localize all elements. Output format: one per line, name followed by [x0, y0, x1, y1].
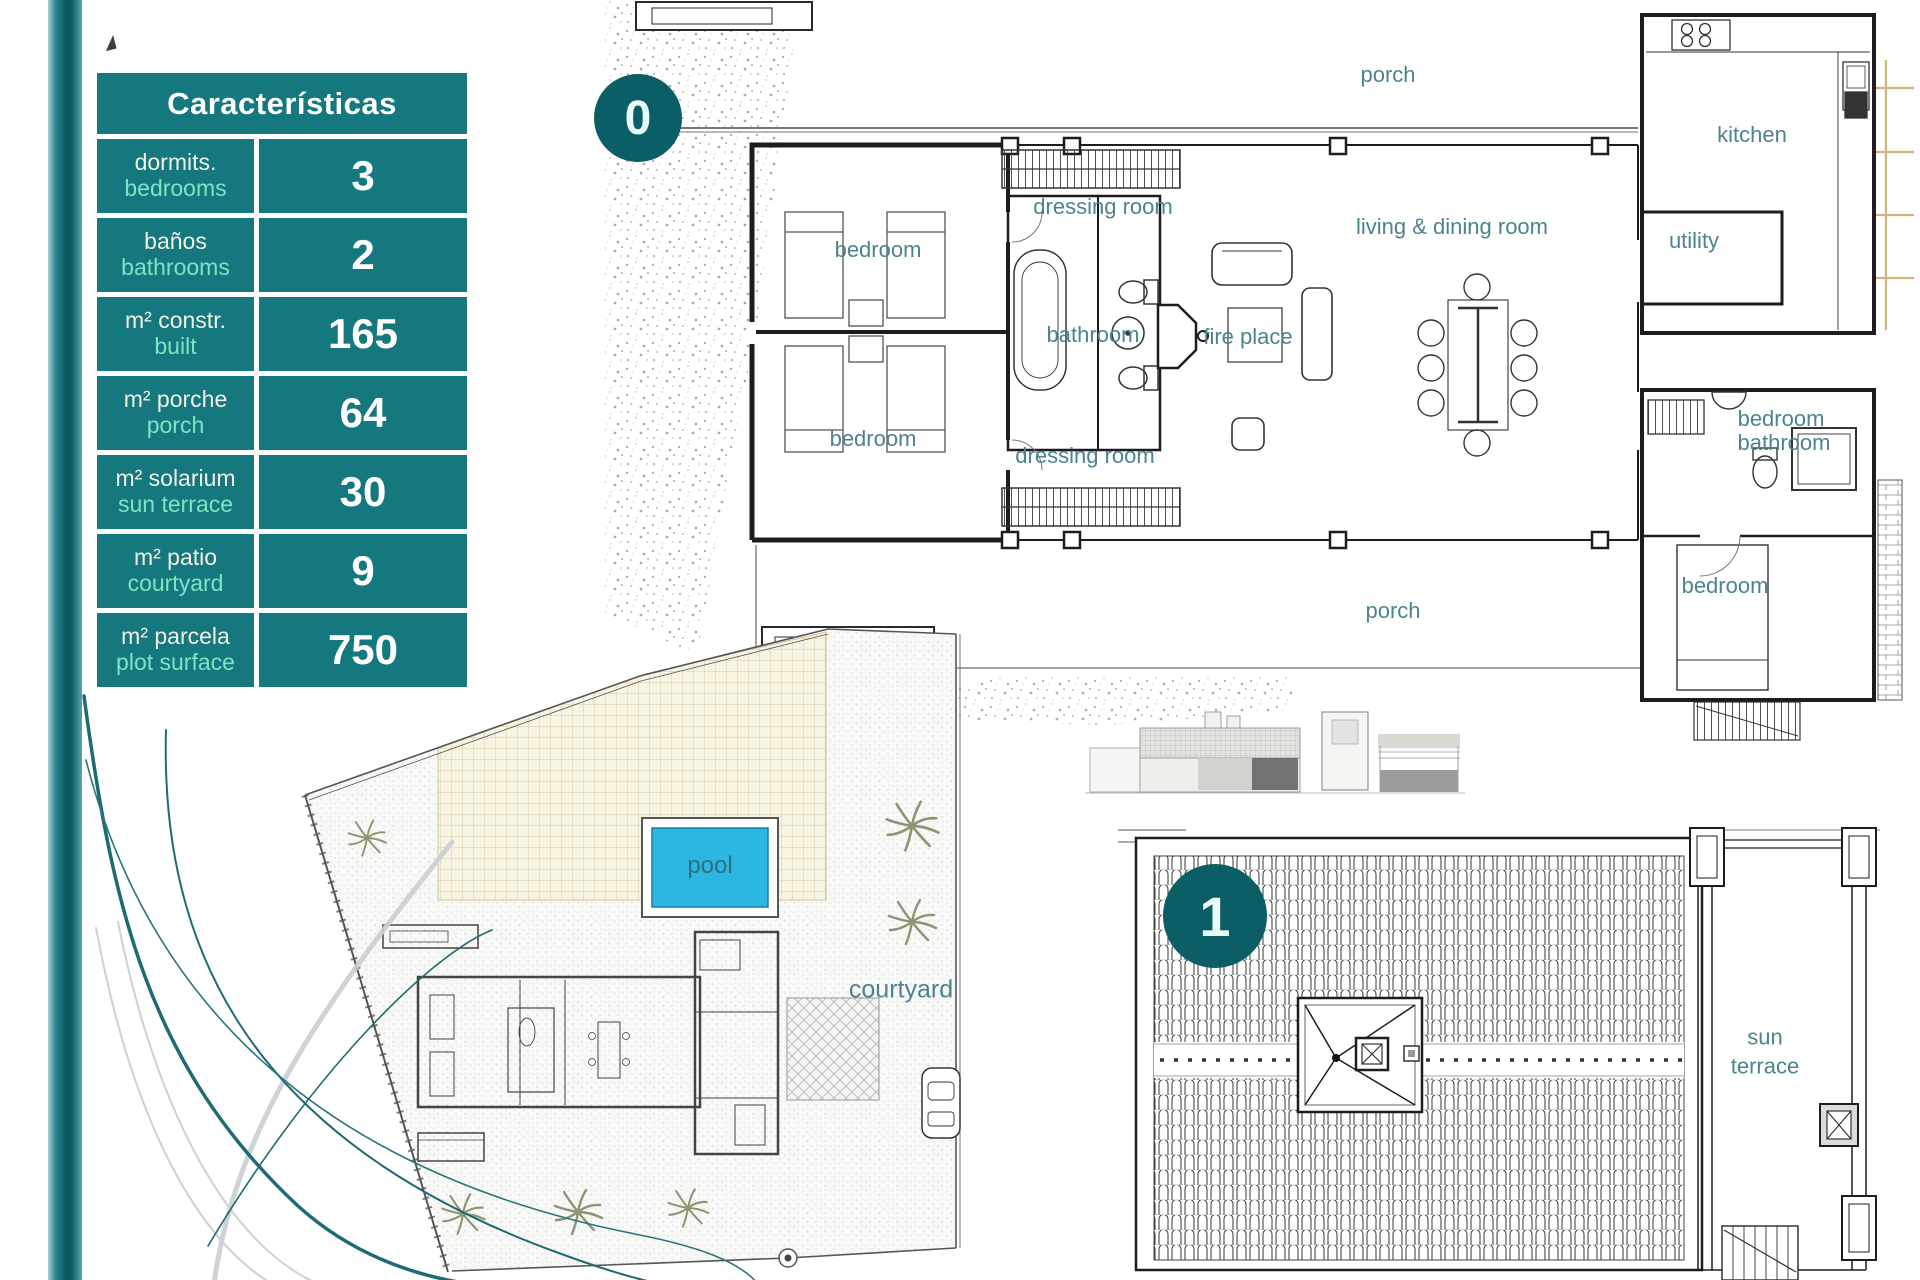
row-label-en: built — [154, 334, 196, 360]
decorative-swirls — [40, 690, 800, 1280]
accent-side-bar — [48, 0, 82, 1280]
room-label-living-dining: living & dining room — [1356, 214, 1548, 240]
row-value: 64 — [340, 389, 387, 437]
row-label-es: m² porche — [124, 387, 228, 413]
row-label-en: plot surface — [116, 650, 235, 676]
car — [922, 1068, 960, 1138]
corner-mark-icon — [102, 35, 116, 51]
table-row: m² parcelaplot surface 750 — [97, 613, 467, 687]
room-label-dressing-top: dressing room — [1033, 194, 1172, 220]
room-label-utility: utility — [1669, 228, 1719, 254]
row-label-es: m² patio — [134, 545, 217, 571]
courtyard-paving — [787, 998, 879, 1100]
characteristics-table: Características dormits.bedrooms 3 baños… — [97, 73, 467, 687]
room-label-bathroom-right: bathroom — [1738, 430, 1831, 456]
row-label-en: sun terrace — [118, 492, 233, 518]
table-row: bañosbathrooms 2 — [97, 218, 467, 292]
row-label-en: bedrooms — [124, 176, 226, 202]
room-label-fireplace: fire place — [1203, 324, 1292, 350]
row-label-es: m² solarium — [115, 466, 235, 492]
elevation-sketch — [1085, 712, 1465, 793]
table-row: m² porcheporch 64 — [97, 376, 467, 450]
table-row: m² solariumsun terrace 30 — [97, 455, 467, 529]
row-label-es: m² constr. — [125, 308, 226, 334]
room-label-bathroom-left: bathroom — [1047, 322, 1140, 348]
row-label-en: porch — [147, 413, 205, 439]
room-label-porch-top: porch — [1360, 62, 1415, 88]
site-label-pool: pool — [687, 852, 732, 880]
row-value: 9 — [351, 547, 374, 595]
row-value: 750 — [328, 626, 398, 674]
room-label-porch-bottom: porch — [1365, 598, 1420, 624]
room-label-bedroom-right: bedroom — [1738, 406, 1825, 432]
room-label-dressing-bottom: dressing room — [1015, 443, 1154, 469]
floor-0-badge: 0 — [594, 74, 682, 162]
row-label-es: dormits. — [135, 150, 217, 176]
row-value: 2 — [351, 231, 374, 279]
room-label-sun-terrace: sun terrace — [1710, 1023, 1820, 1080]
room-label-bedroom-bottom-left: bedroom — [830, 426, 917, 452]
row-value: 165 — [328, 310, 398, 358]
table-row: m² patiocourtyard 9 — [97, 534, 467, 608]
site-label-courtyard: courtyard — [849, 976, 953, 1005]
roof-plan — [1080, 680, 1920, 1280]
row-value: 3 — [351, 152, 374, 200]
row-value: 30 — [340, 468, 387, 516]
fireplace-shape — [1158, 305, 1196, 368]
row-label-en: bathrooms — [121, 255, 230, 281]
floor-1-badge: 1 — [1163, 864, 1267, 968]
room-label-bedroom-top: bedroom — [835, 237, 922, 263]
table-title: Características — [97, 73, 467, 134]
room-label-bedroom-bottom-right: bedroom — [1682, 573, 1769, 599]
row-label-es: baños — [144, 229, 207, 255]
stone-wall-texture — [1878, 480, 1902, 700]
table-row: m² constr.built 165 — [97, 297, 467, 371]
row-label-es: m² parcela — [121, 624, 230, 650]
row-label-en: courtyard — [128, 571, 224, 597]
room-label-kitchen: kitchen — [1717, 122, 1787, 148]
table-row: dormits.bedrooms 3 — [97, 139, 467, 213]
